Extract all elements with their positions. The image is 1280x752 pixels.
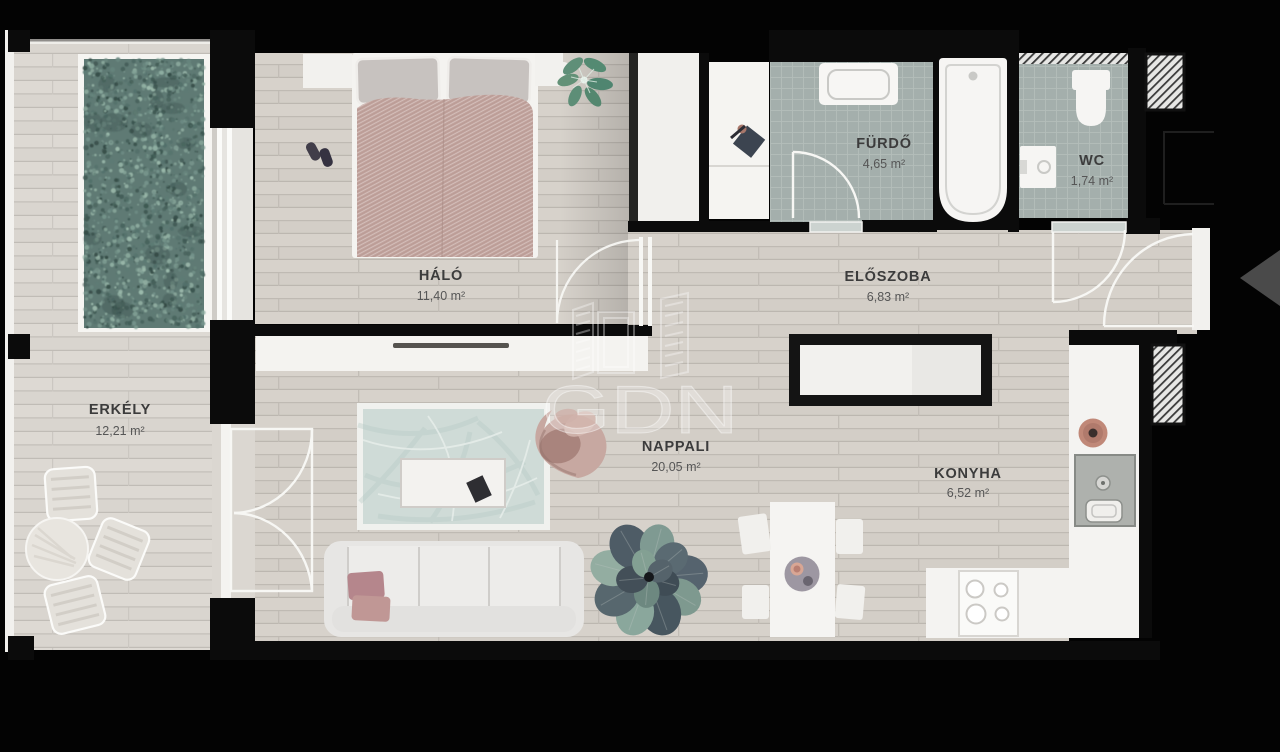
svg-text:6,52 m²: 6,52 m²	[947, 486, 989, 500]
svg-text:1,74 m²: 1,74 m²	[1071, 174, 1113, 188]
svg-text:20,05 m²: 20,05 m²	[651, 460, 700, 474]
svg-text:HÁLÓ: HÁLÓ	[419, 266, 463, 284]
svg-text:11,40 m²: 11,40 m²	[417, 289, 465, 303]
svg-text:FÜRDŐ: FÜRDŐ	[856, 134, 912, 152]
svg-text:GDN: GDN	[542, 372, 739, 448]
svg-text:ELŐSZOBA: ELŐSZOBA	[845, 267, 932, 285]
svg-text:ERKÉLY: ERKÉLY	[89, 401, 151, 418]
svg-text:WC: WC	[1079, 153, 1105, 169]
svg-text:4,65 m²: 4,65 m²	[863, 157, 905, 171]
svg-text:KONYHA: KONYHA	[934, 466, 1002, 482]
svg-text:12,21 m²: 12,21 m²	[95, 424, 144, 438]
svg-text:6,83 m²: 6,83 m²	[867, 290, 909, 304]
